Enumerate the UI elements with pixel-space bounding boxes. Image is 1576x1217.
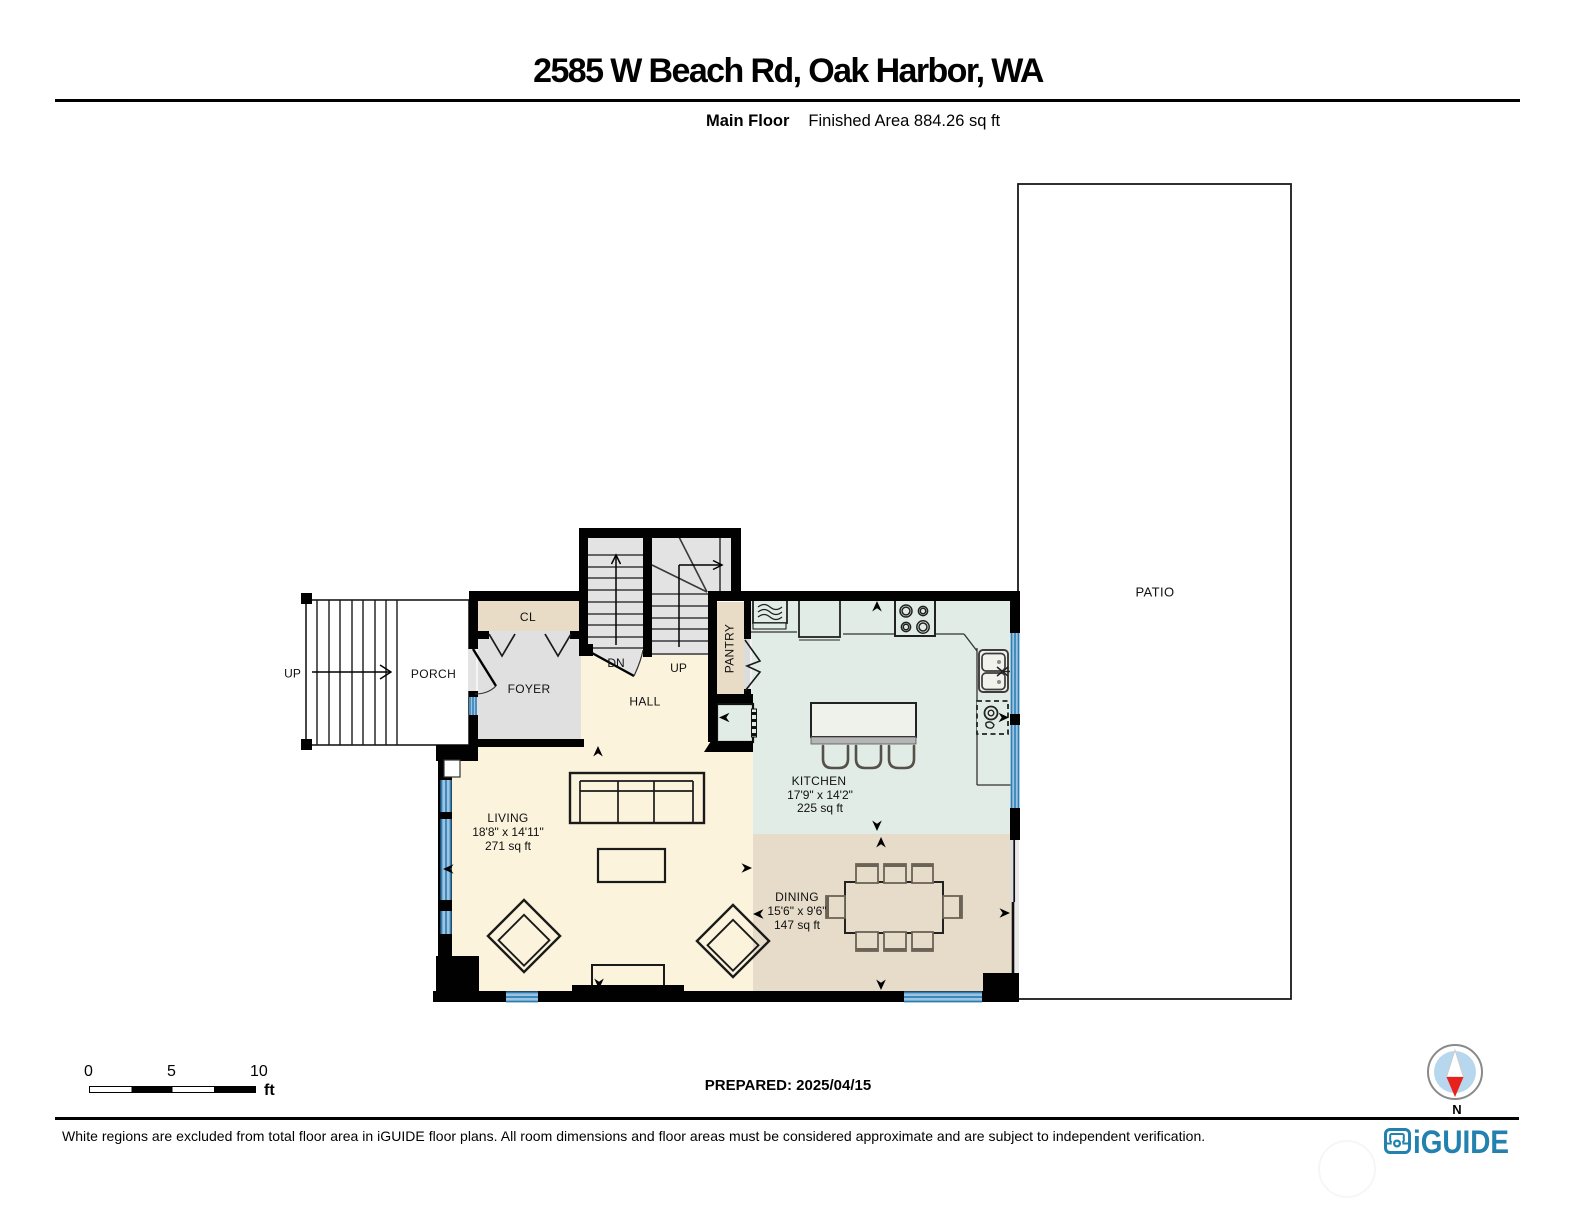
svg-text:CL: CL [520,610,536,624]
svg-text:HALL: HALL [629,695,660,709]
svg-text:225 sq ft: 225 sq ft [797,801,844,815]
svg-text:PANTRY: PANTRY [723,624,737,673]
svg-text:147 sq ft: 147 sq ft [774,918,821,932]
svg-text:FOYER: FOYER [508,682,551,696]
svg-text:N: N [1452,1102,1461,1117]
svg-text:18'8" x 14'11": 18'8" x 14'11" [472,825,544,839]
svg-text:iGUIDE: iGUIDE [1413,1124,1509,1160]
svg-text:UP: UP [670,661,687,675]
svg-text:15'6" x 9'6": 15'6" x 9'6" [767,904,826,918]
svg-text:KITCHEN: KITCHEN [792,774,847,788]
svg-text:LIVING: LIVING [487,811,528,825]
svg-text:271 sq ft: 271 sq ft [485,839,532,853]
svg-text:UP: UP [284,667,301,681]
svg-text:17'9" x 14'2": 17'9" x 14'2" [787,788,853,802]
svg-text:DN: DN [607,656,624,670]
svg-text:DINING: DINING [775,890,819,904]
svg-text:PORCH: PORCH [411,667,456,681]
svg-text:PATIO: PATIO [1135,585,1174,600]
